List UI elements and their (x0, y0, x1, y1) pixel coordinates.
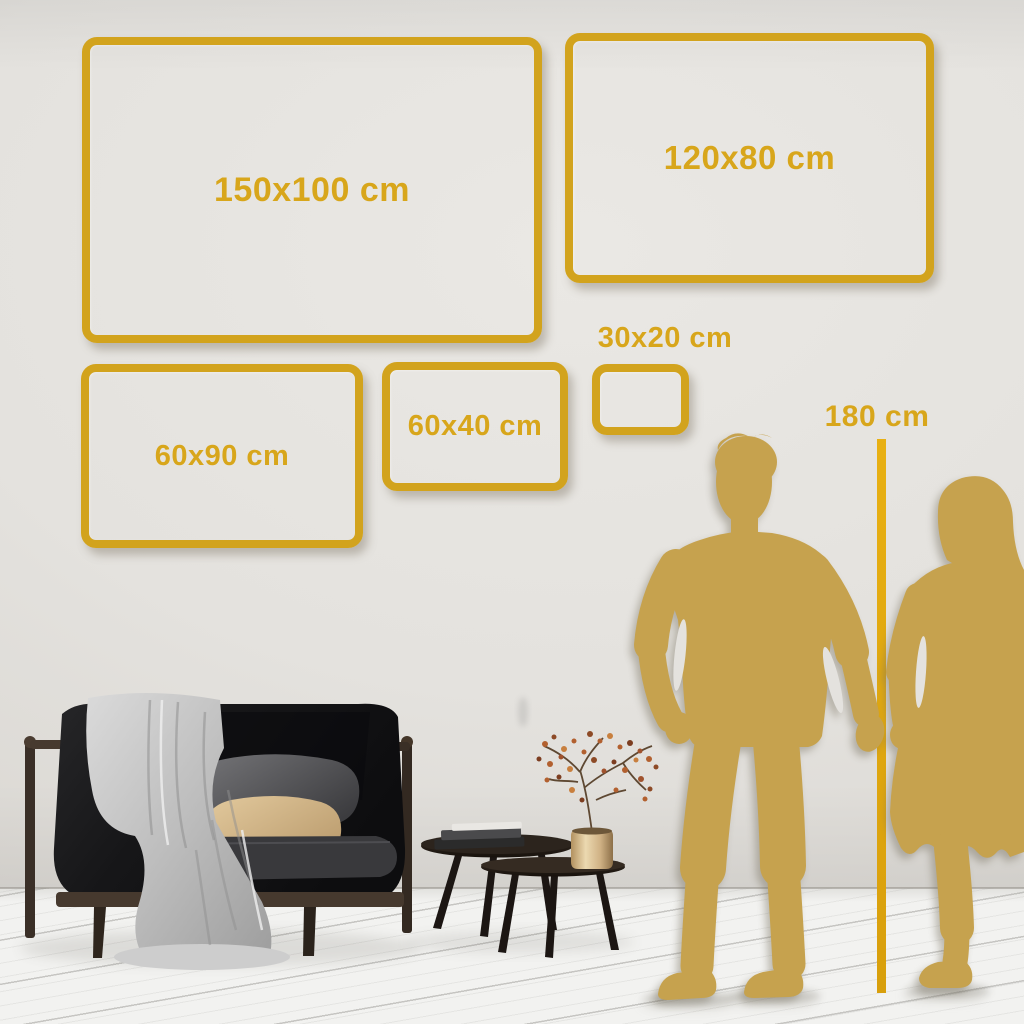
couple-silhouette (0, 0, 1024, 1024)
woman-silhouette (890, 476, 1024, 988)
man-silhouette (651, 433, 888, 1000)
size-guide-scene: 150x100 cm 120x80 cm 60x90 cm 60x40 cm 3… (0, 0, 1024, 1024)
